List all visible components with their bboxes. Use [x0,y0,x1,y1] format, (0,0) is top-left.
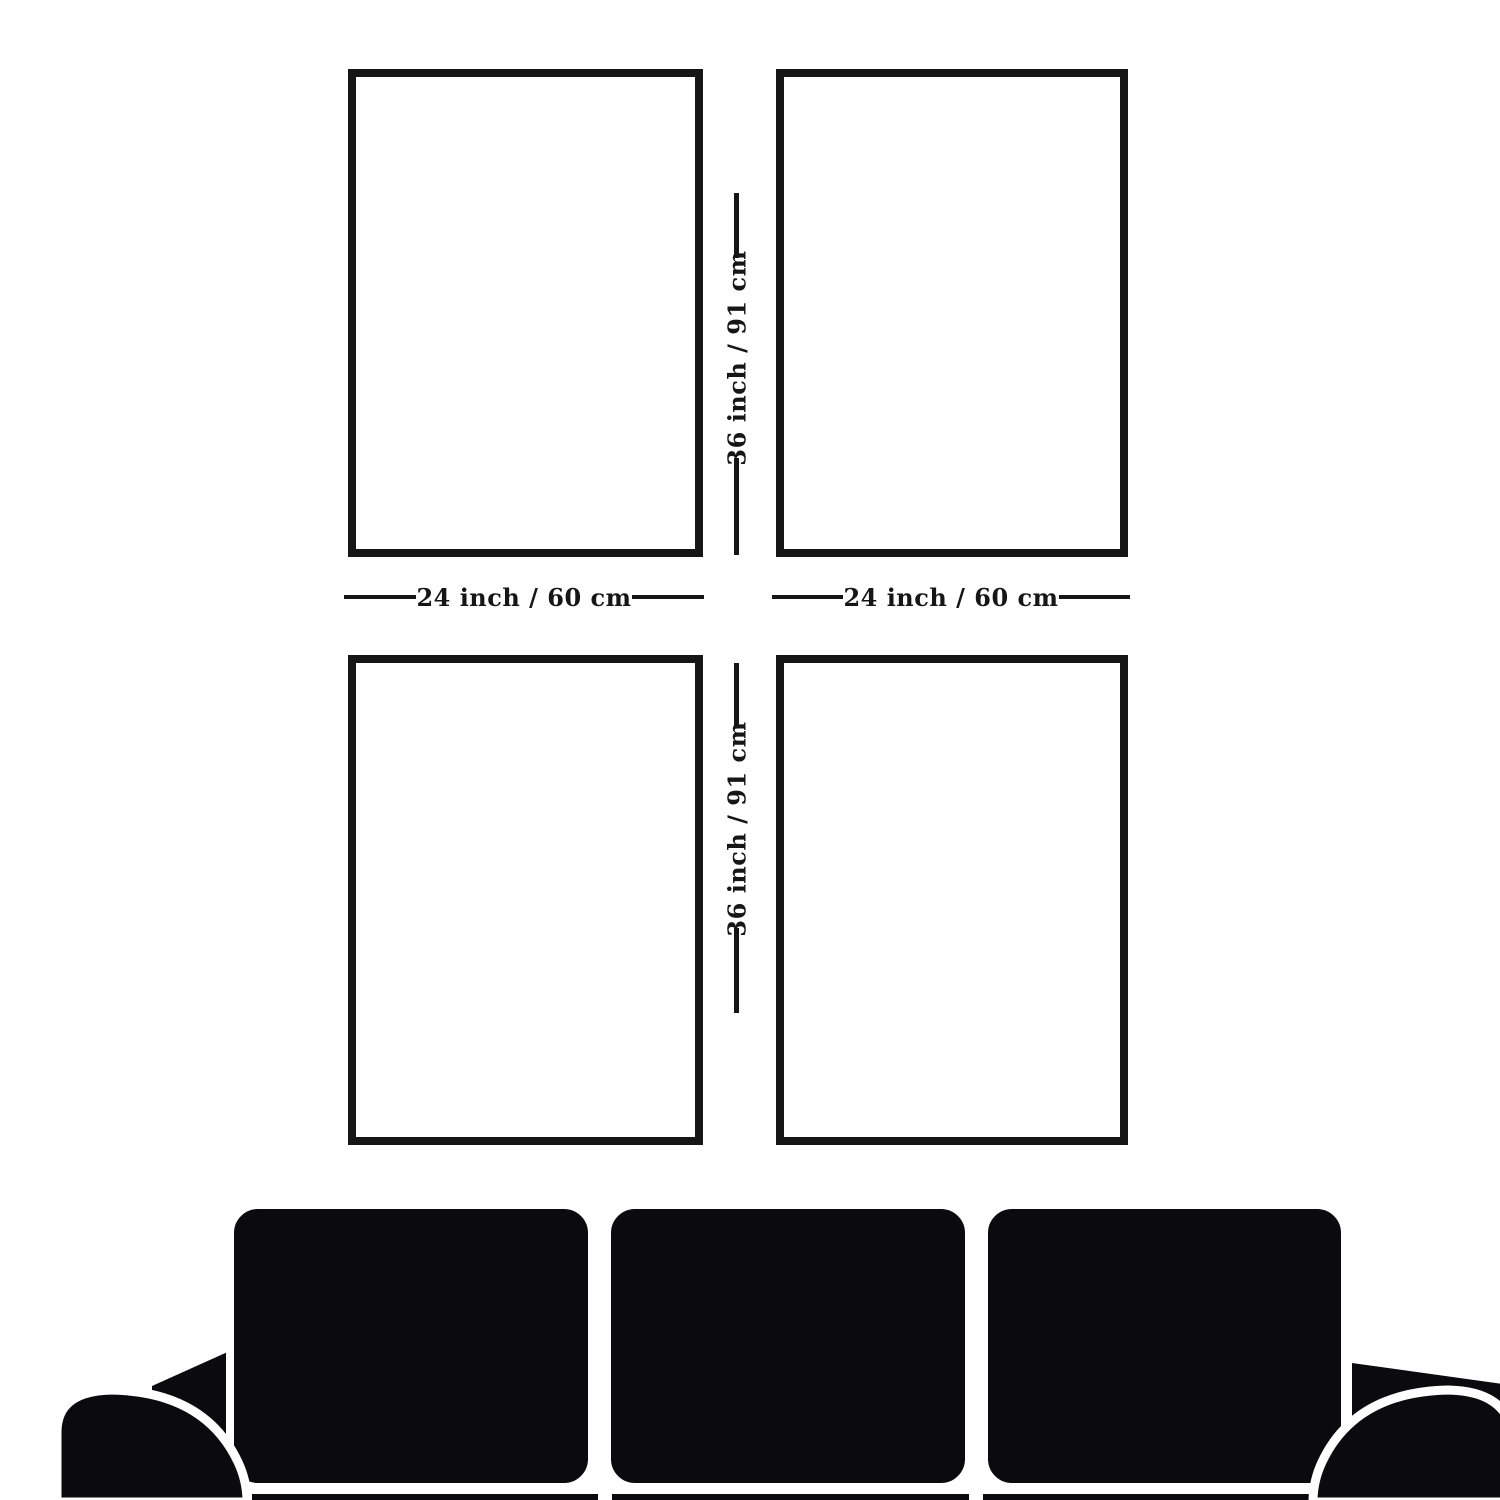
dimension-dash [1059,595,1130,599]
dimension-dash [772,595,843,599]
poster-frame-bottom-left [348,655,703,1145]
dimension-line [734,458,739,555]
sofa-back-cushion [230,1205,592,1487]
width-dimension-left: 24 inch / 60 cm [344,577,704,617]
sofa-back-cushion [607,1205,969,1487]
poster-frame-bottom-right [776,655,1128,1145]
height-dimension-label: 36 inch / 91 cm [723,721,752,936]
sofa-back-cushion [984,1205,1345,1487]
sofa-seat-cushion [983,1494,1313,1500]
height-dimension-label: 36 inch / 91 cm [723,250,752,465]
width-dimension-label: 24 inch / 60 cm [416,583,631,612]
poster-frame-top-right [776,69,1128,557]
dimension-dash [632,595,704,599]
dimension-line [734,663,739,728]
dimension-line [734,928,739,1013]
width-dimension-label: 24 inch / 60 cm [843,583,1058,612]
sofa-seat-cushion [252,1494,598,1500]
size-guide-diagram: 24 inch / 60 cm 24 inch / 60 cm 36 inch … [0,0,1500,1500]
sofa-seat-cushion [612,1494,969,1500]
width-dimension-right: 24 inch / 60 cm [772,577,1130,617]
dimension-dash [344,595,416,599]
poster-frame-top-left [348,69,703,557]
dimension-line [734,193,739,258]
sofa-silhouette-icon [0,1180,1500,1500]
